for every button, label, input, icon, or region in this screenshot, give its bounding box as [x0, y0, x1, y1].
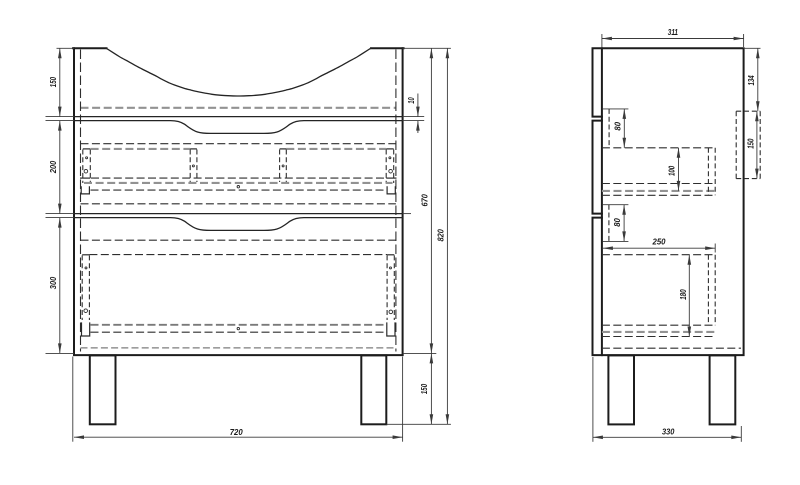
svg-text:200: 200 [49, 160, 58, 174]
svg-text:720: 720 [230, 428, 243, 437]
svg-text:670: 670 [421, 194, 430, 207]
svg-text:100: 100 [668, 165, 677, 176]
svg-text:80: 80 [613, 218, 622, 227]
svg-text:250: 250 [652, 238, 666, 247]
svg-text:150: 150 [49, 77, 58, 88]
svg-text:80: 80 [613, 122, 622, 131]
svg-text:134: 134 [747, 75, 756, 86]
svg-text:10: 10 [407, 97, 416, 104]
svg-text:300: 300 [49, 276, 58, 289]
svg-text:150: 150 [420, 384, 429, 395]
svg-text:311: 311 [668, 28, 679, 37]
svg-text:820: 820 [437, 229, 446, 242]
svg-text:330: 330 [662, 427, 675, 436]
svg-text:180: 180 [679, 289, 688, 300]
svg-text:150: 150 [746, 138, 755, 149]
